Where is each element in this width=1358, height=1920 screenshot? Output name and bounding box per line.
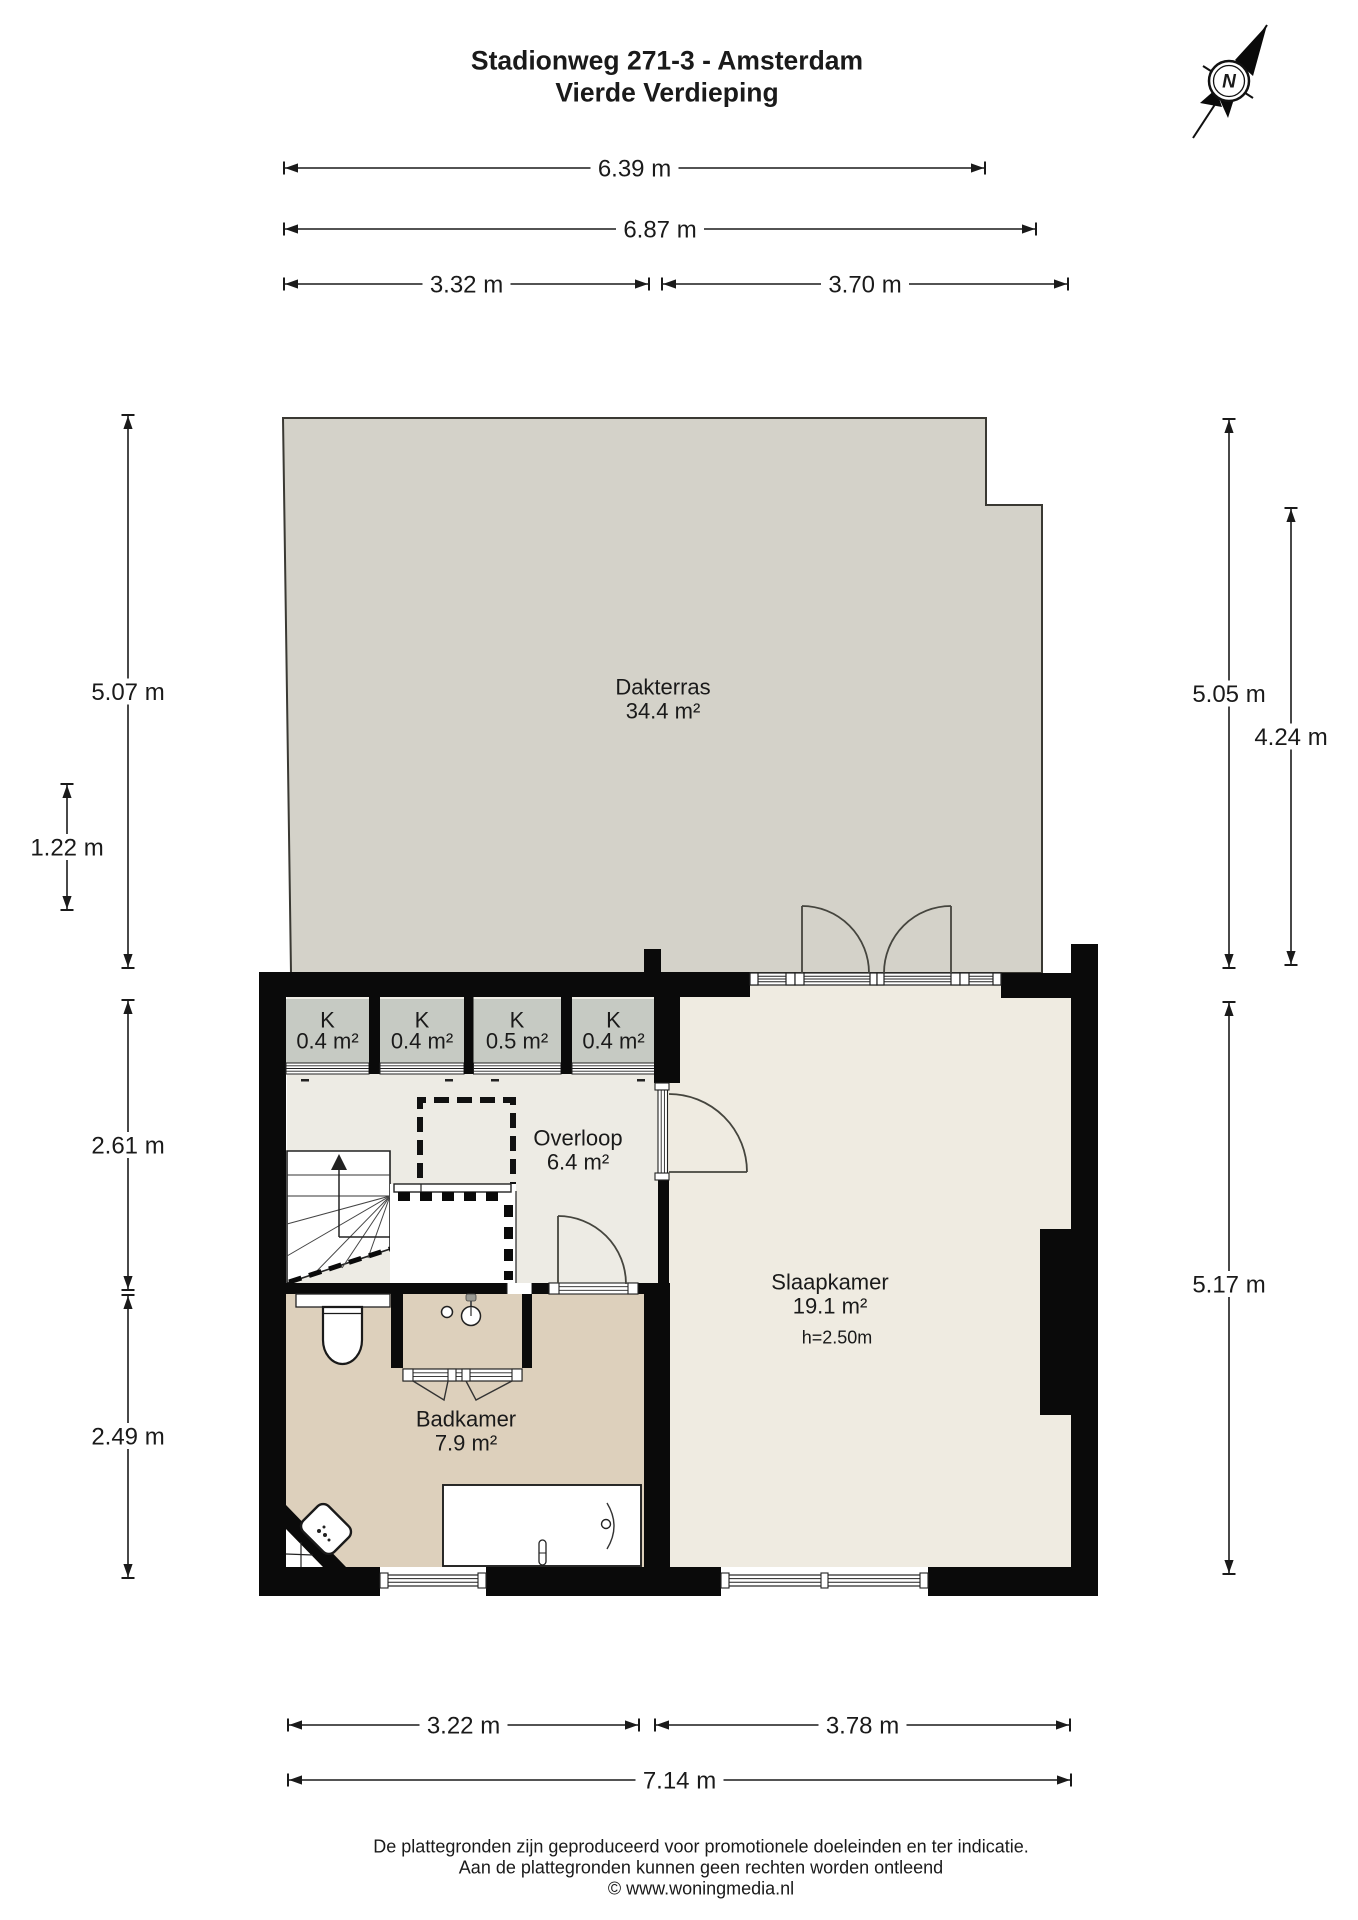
svg-text:3.70 m: 3.70 m xyxy=(828,271,901,298)
svg-text:Badkamer: Badkamer xyxy=(416,1407,516,1432)
svg-text:0.4 m²: 0.4 m² xyxy=(391,1029,453,1054)
svg-text:3.32 m: 3.32 m xyxy=(430,271,503,298)
svg-text:19.1 m²: 19.1 m² xyxy=(793,1294,868,1319)
svg-text:5.07 m: 5.07 m xyxy=(91,679,164,706)
svg-text:4.24 m: 4.24 m xyxy=(1254,724,1327,751)
svg-text:h=2.50m: h=2.50m xyxy=(802,1327,873,1347)
svg-text:0.4 m²: 0.4 m² xyxy=(582,1029,644,1054)
svg-text:6.4 m²: 6.4 m² xyxy=(547,1150,609,1175)
svg-text:De plattegronden zijn geproduc: De plattegronden zijn geproduceerd voor … xyxy=(373,1836,1028,1856)
svg-text:Aan de plattegronden kunnen ge: Aan de plattegronden kunnen geen rechten… xyxy=(459,1857,943,1877)
svg-text:© www.woningmedia.nl: © www.woningmedia.nl xyxy=(608,1878,794,1898)
svg-text:1.22 m: 1.22 m xyxy=(30,834,103,861)
svg-text:3.78 m: 3.78 m xyxy=(826,1712,899,1739)
svg-text:Slaapkamer: Slaapkamer xyxy=(771,1270,888,1295)
svg-text:2.61 m: 2.61 m xyxy=(91,1132,164,1159)
svg-text:Stadionweg 271-3 - Amsterdam: Stadionweg 271-3 - Amsterdam xyxy=(471,45,863,75)
svg-text:5.17 m: 5.17 m xyxy=(1192,1271,1265,1298)
svg-text:0.5 m²: 0.5 m² xyxy=(486,1029,548,1054)
svg-text:0.4 m²: 0.4 m² xyxy=(296,1029,358,1054)
svg-text:34.4 m²: 34.4 m² xyxy=(626,699,701,724)
svg-text:5.05 m: 5.05 m xyxy=(1192,681,1265,708)
svg-text:2.49 m: 2.49 m xyxy=(91,1423,164,1450)
svg-text:7.14 m: 7.14 m xyxy=(643,1767,716,1794)
svg-text:N: N xyxy=(1222,72,1237,93)
svg-text:Vierde Verdieping: Vierde Verdieping xyxy=(555,77,778,107)
svg-text:6.87 m: 6.87 m xyxy=(623,216,696,243)
svg-text:6.39 m: 6.39 m xyxy=(598,155,671,182)
svg-text:7.9 m²: 7.9 m² xyxy=(435,1431,497,1456)
svg-text:Overloop: Overloop xyxy=(533,1126,622,1151)
svg-text:3.22 m: 3.22 m xyxy=(427,1712,500,1739)
svg-text:Dakterras: Dakterras xyxy=(615,675,710,700)
